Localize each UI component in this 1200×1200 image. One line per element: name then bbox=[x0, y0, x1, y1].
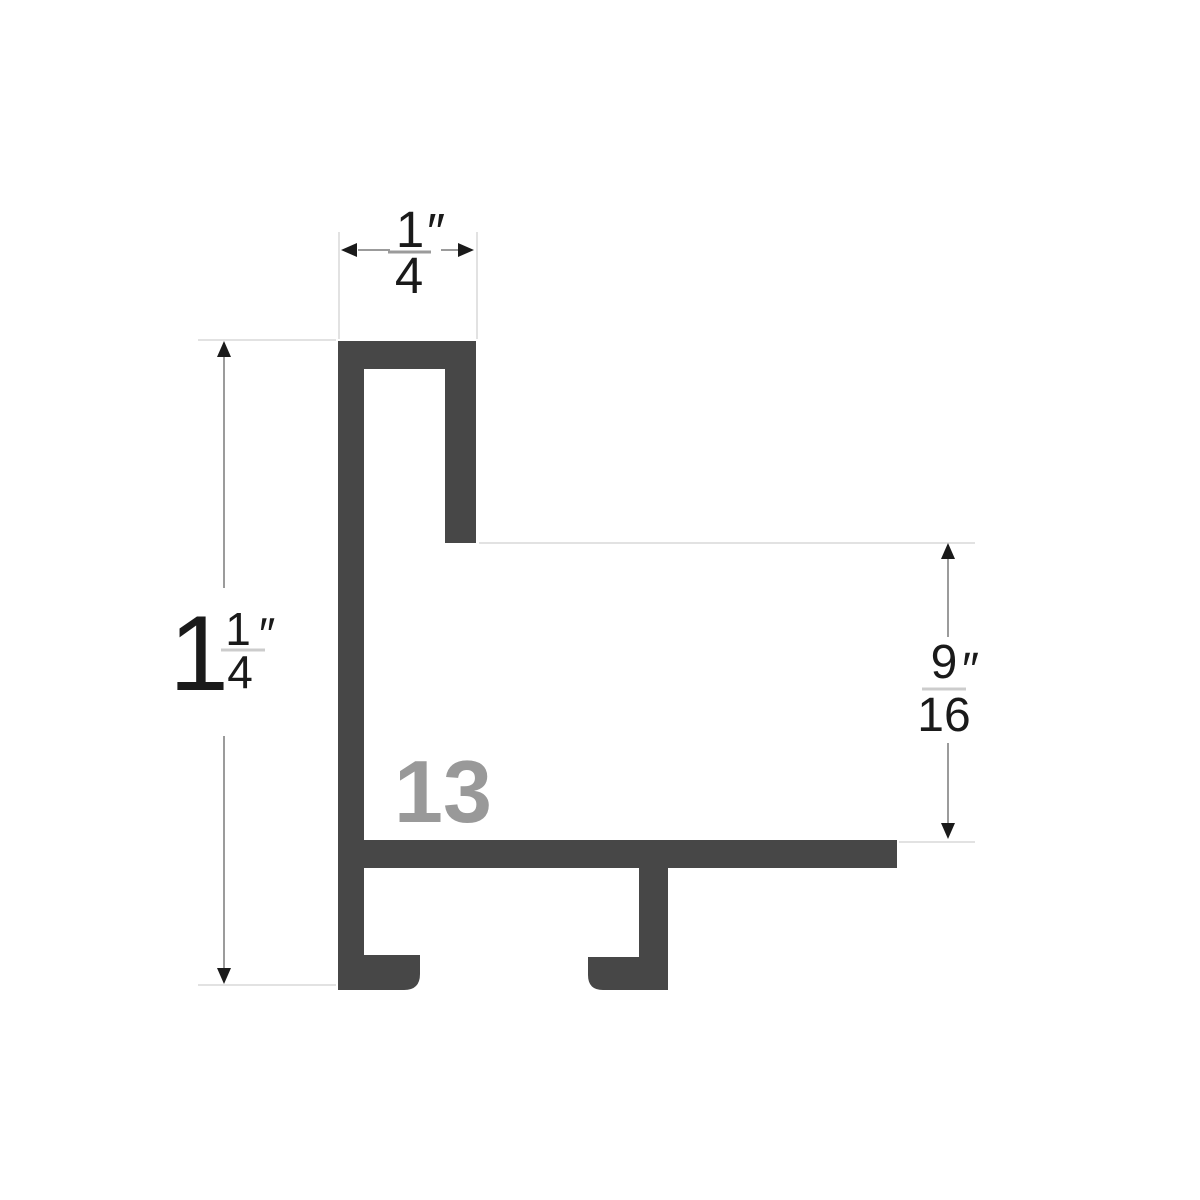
right-height-dimension: 9 16 ″ bbox=[479, 543, 979, 842]
top-dim-inch-mark: ″ bbox=[427, 203, 445, 260]
left-dim-arrow-down-icon bbox=[217, 968, 231, 984]
left-dim-whole-number: 1 bbox=[169, 593, 229, 713]
profile-number-label: 13 bbox=[394, 742, 492, 841]
moulding-profile-diagram: 13 1 4 ″ 1 1 4 ″ bbox=[0, 0, 1200, 1200]
top-dim-denominator: 4 bbox=[395, 247, 423, 304]
left-height-dimension: 1 1 4 ″ bbox=[169, 340, 336, 985]
right-dim-numerator: 9 bbox=[931, 636, 958, 689]
right-dim-arrow-up-icon bbox=[941, 543, 955, 559]
left-dim-arrow-up-icon bbox=[217, 341, 231, 357]
right-dim-inch-mark: ″ bbox=[962, 644, 979, 697]
top-width-dimension: 1 4 ″ bbox=[339, 201, 477, 339]
diagram-svg: 13 1 4 ″ 1 1 4 ″ bbox=[0, 0, 1200, 1200]
right-dim-arrow-down-icon bbox=[941, 823, 955, 839]
top-dim-arrow-right-icon bbox=[458, 243, 474, 257]
left-dim-inch-mark: ″ bbox=[259, 608, 275, 660]
frame-profile-shape bbox=[338, 341, 897, 990]
top-dim-arrow-left-icon bbox=[341, 243, 357, 257]
left-dim-denominator: 4 bbox=[227, 646, 253, 698]
